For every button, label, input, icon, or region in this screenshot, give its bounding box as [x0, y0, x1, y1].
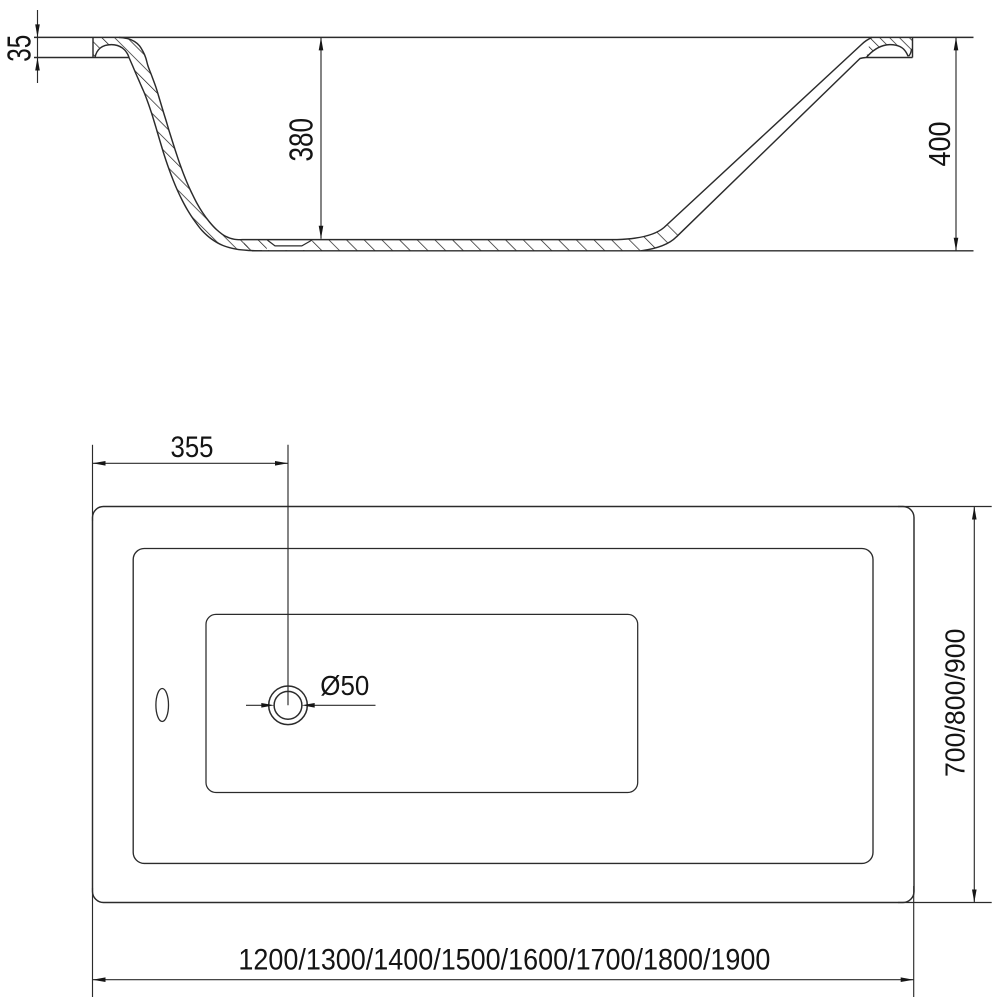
svg-text:355: 355	[171, 431, 214, 464]
svg-text:700/800/900: 700/800/900	[939, 629, 970, 778]
svg-text:35: 35	[1, 35, 38, 62]
svg-text:380: 380	[283, 118, 320, 162]
svg-text:1200/1300/1400/1500/1600/1700/: 1200/1300/1400/1500/1600/1700/1800/1900	[238, 944, 770, 977]
svg-text:400: 400	[922, 122, 957, 167]
svg-text:Ø50: Ø50	[320, 670, 369, 701]
